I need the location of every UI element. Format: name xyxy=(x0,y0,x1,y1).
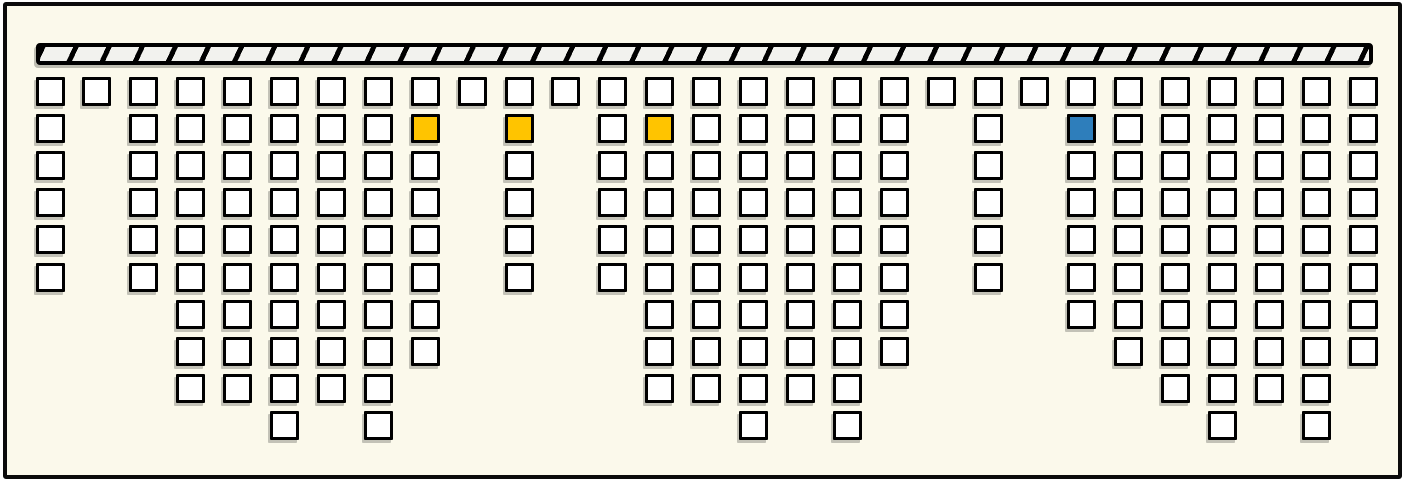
grid-cell[interactable] xyxy=(1161,263,1190,292)
grid-cell[interactable] xyxy=(1114,225,1143,254)
grid-cell[interactable] xyxy=(880,114,909,143)
grid-cell[interactable] xyxy=(1208,151,1237,180)
grid-cell[interactable] xyxy=(598,263,627,292)
grid-cell[interactable] xyxy=(974,151,1003,180)
grid-cell[interactable] xyxy=(129,263,158,292)
grid-cell[interactable] xyxy=(317,263,346,292)
grid-cell[interactable] xyxy=(833,411,862,440)
grid-cell[interactable] xyxy=(270,188,299,217)
grid-cell[interactable] xyxy=(739,374,768,403)
grid-cell[interactable] xyxy=(974,225,1003,254)
grid-cell[interactable] xyxy=(692,77,721,106)
grid-cell[interactable] xyxy=(411,225,440,254)
grid-cell[interactable] xyxy=(270,374,299,403)
grid-cell[interactable] xyxy=(1020,77,1049,106)
grid-cell[interactable] xyxy=(505,77,534,106)
grid-cell[interactable] xyxy=(1161,77,1190,106)
grid-cell[interactable] xyxy=(739,151,768,180)
grid-cell[interactable] xyxy=(880,151,909,180)
grid-cell[interactable] xyxy=(1255,263,1284,292)
grid-cell[interactable] xyxy=(36,151,65,180)
grid-cell-highlighted-yellow[interactable] xyxy=(411,114,440,143)
grid-cell[interactable] xyxy=(1208,337,1237,366)
grid-cell[interactable] xyxy=(598,188,627,217)
grid-cell[interactable] xyxy=(1255,151,1284,180)
grid-cell[interactable] xyxy=(598,151,627,180)
grid-cell[interactable] xyxy=(270,300,299,329)
grid-cell[interactable] xyxy=(505,151,534,180)
grid-cell[interactable] xyxy=(1208,188,1237,217)
grid-cell[interactable] xyxy=(833,151,862,180)
grid-cell[interactable] xyxy=(129,114,158,143)
grid-cell[interactable] xyxy=(1255,188,1284,217)
grid-cell[interactable] xyxy=(364,188,393,217)
grid-cell[interactable] xyxy=(833,337,862,366)
grid-cell[interactable] xyxy=(223,300,252,329)
grid-cell[interactable] xyxy=(1161,337,1190,366)
grid-cell[interactable] xyxy=(645,337,674,366)
grid-cell[interactable] xyxy=(645,77,674,106)
grid-cell[interactable] xyxy=(36,188,65,217)
grid-cell[interactable] xyxy=(1302,411,1331,440)
grid-cell[interactable] xyxy=(364,411,393,440)
grid-cell[interactable] xyxy=(36,225,65,254)
grid-cell[interactable] xyxy=(176,77,205,106)
grid-cell[interactable] xyxy=(411,263,440,292)
grid-cell[interactable] xyxy=(739,300,768,329)
grid-cell[interactable] xyxy=(129,77,158,106)
grid-cell[interactable] xyxy=(458,77,487,106)
grid-cell[interactable] xyxy=(36,77,65,106)
grid-cell[interactable] xyxy=(1208,114,1237,143)
grid-cell[interactable] xyxy=(692,188,721,217)
grid-cell[interactable] xyxy=(645,151,674,180)
grid-cell[interactable] xyxy=(786,114,815,143)
grid-cell[interactable] xyxy=(411,337,440,366)
grid-cell[interactable] xyxy=(505,188,534,217)
grid-cell-highlighted-yellow[interactable] xyxy=(505,114,534,143)
grid-cell[interactable] xyxy=(833,225,862,254)
grid-cell[interactable] xyxy=(1208,225,1237,254)
grid-cell[interactable] xyxy=(1161,374,1190,403)
grid-cell[interactable] xyxy=(364,337,393,366)
grid-cell[interactable] xyxy=(1067,77,1096,106)
grid-cell[interactable] xyxy=(1302,77,1331,106)
grid-cell[interactable] xyxy=(1114,151,1143,180)
grid-cell[interactable] xyxy=(692,300,721,329)
grid-cell[interactable] xyxy=(739,188,768,217)
grid-cell[interactable] xyxy=(1114,114,1143,143)
grid-cell[interactable] xyxy=(364,114,393,143)
grid-cell[interactable] xyxy=(833,263,862,292)
grid-cell[interactable] xyxy=(223,151,252,180)
grid-cell[interactable] xyxy=(176,300,205,329)
grid-cell[interactable] xyxy=(1114,77,1143,106)
grid-cell[interactable] xyxy=(176,114,205,143)
grid-cell[interactable] xyxy=(270,337,299,366)
grid-cell[interactable] xyxy=(223,188,252,217)
grid-cell[interactable] xyxy=(739,263,768,292)
grid-cell[interactable] xyxy=(364,225,393,254)
grid-cell[interactable] xyxy=(1349,151,1378,180)
grid-cell[interactable] xyxy=(364,151,393,180)
grid-cell[interactable] xyxy=(223,77,252,106)
grid-cell[interactable] xyxy=(317,77,346,106)
grid-cell[interactable] xyxy=(786,151,815,180)
grid-cell[interactable] xyxy=(692,374,721,403)
grid-cell[interactable] xyxy=(786,263,815,292)
grid-cell[interactable] xyxy=(1067,225,1096,254)
grid-cell[interactable] xyxy=(1302,114,1331,143)
grid-cell[interactable] xyxy=(1302,337,1331,366)
grid-cell[interactable] xyxy=(598,77,627,106)
grid-cell[interactable] xyxy=(1161,225,1190,254)
grid-cell[interactable] xyxy=(645,374,674,403)
grid-cell[interactable] xyxy=(176,263,205,292)
grid-cell[interactable] xyxy=(411,188,440,217)
grid-cell[interactable] xyxy=(974,263,1003,292)
grid-cell[interactable] xyxy=(739,77,768,106)
grid-cell[interactable] xyxy=(1161,188,1190,217)
grid-cell[interactable] xyxy=(974,188,1003,217)
grid-cell[interactable] xyxy=(1255,225,1284,254)
grid-cell[interactable] xyxy=(833,188,862,217)
grid-cell[interactable] xyxy=(880,300,909,329)
grid-cell[interactable] xyxy=(833,374,862,403)
grid-cell[interactable] xyxy=(270,225,299,254)
grid-cell[interactable] xyxy=(1067,263,1096,292)
grid-cell-highlighted-yellow[interactable] xyxy=(645,114,674,143)
grid-cell[interactable] xyxy=(317,188,346,217)
grid-cell[interactable] xyxy=(974,77,1003,106)
grid-cell[interactable] xyxy=(1067,151,1096,180)
grid-cell[interactable] xyxy=(880,263,909,292)
grid-cell[interactable] xyxy=(880,188,909,217)
grid-cell[interactable] xyxy=(36,263,65,292)
grid-cell[interactable] xyxy=(1161,151,1190,180)
grid-cell[interactable] xyxy=(786,300,815,329)
grid-cell[interactable] xyxy=(364,300,393,329)
grid-cell[interactable] xyxy=(1302,151,1331,180)
grid-cell[interactable] xyxy=(129,151,158,180)
grid-cell[interactable] xyxy=(317,151,346,180)
grid-cell[interactable] xyxy=(1114,188,1143,217)
grid-cell[interactable] xyxy=(36,114,65,143)
grid-cell[interactable] xyxy=(974,114,1003,143)
grid-cell[interactable] xyxy=(317,374,346,403)
grid-cell[interactable] xyxy=(1349,188,1378,217)
grid-cell[interactable] xyxy=(1161,114,1190,143)
grid-cell[interactable] xyxy=(176,151,205,180)
grid-cell[interactable] xyxy=(1114,337,1143,366)
grid-cell[interactable] xyxy=(786,188,815,217)
grid-cell[interactable] xyxy=(645,188,674,217)
grid-cell[interactable] xyxy=(1302,300,1331,329)
grid-cell[interactable] xyxy=(1255,374,1284,403)
grid-cell[interactable] xyxy=(1302,225,1331,254)
grid-cell[interactable] xyxy=(1302,374,1331,403)
grid-cell[interactable] xyxy=(223,263,252,292)
grid-cell[interactable] xyxy=(364,374,393,403)
grid-cell[interactable] xyxy=(505,225,534,254)
grid-cell[interactable] xyxy=(786,77,815,106)
grid-cell[interactable] xyxy=(692,263,721,292)
grid-cell[interactable] xyxy=(786,374,815,403)
grid-cell[interactable] xyxy=(1302,263,1331,292)
grid-cell[interactable] xyxy=(317,225,346,254)
grid-cell[interactable] xyxy=(176,374,205,403)
grid-cell[interactable] xyxy=(129,225,158,254)
grid-cell[interactable] xyxy=(598,225,627,254)
grid-cell[interactable] xyxy=(645,300,674,329)
grid-cell[interactable] xyxy=(1208,411,1237,440)
grid-cell[interactable] xyxy=(739,225,768,254)
grid-cell[interactable] xyxy=(1208,77,1237,106)
grid-cell[interactable] xyxy=(1208,300,1237,329)
grid-cell[interactable] xyxy=(645,225,674,254)
grid-cell[interactable] xyxy=(880,337,909,366)
grid-cell[interactable] xyxy=(364,77,393,106)
grid-cell[interactable] xyxy=(176,225,205,254)
grid-cell[interactable] xyxy=(223,114,252,143)
grid-cell[interactable] xyxy=(317,300,346,329)
grid-cell[interactable] xyxy=(786,337,815,366)
grid-cell[interactable] xyxy=(1349,114,1378,143)
grid-cell[interactable] xyxy=(880,77,909,106)
grid-cell[interactable] xyxy=(1208,263,1237,292)
grid-cell[interactable] xyxy=(1255,77,1284,106)
grid-cell[interactable] xyxy=(223,374,252,403)
grid-cell[interactable] xyxy=(880,225,909,254)
grid-cell[interactable] xyxy=(270,114,299,143)
grid-cell[interactable] xyxy=(270,411,299,440)
grid-cell[interactable] xyxy=(1067,300,1096,329)
grid-cell[interactable] xyxy=(692,114,721,143)
grid-cell[interactable] xyxy=(551,77,580,106)
grid-cell[interactable] xyxy=(317,337,346,366)
grid-cell[interactable] xyxy=(82,77,111,106)
grid-cell[interactable] xyxy=(692,225,721,254)
grid-cell[interactable] xyxy=(270,263,299,292)
grid-cell[interactable] xyxy=(270,151,299,180)
grid-cell[interactable] xyxy=(1255,300,1284,329)
grid-cell[interactable] xyxy=(739,337,768,366)
grid-cell[interactable] xyxy=(786,225,815,254)
grid-cell[interactable] xyxy=(270,77,299,106)
grid-cell[interactable] xyxy=(364,263,393,292)
grid-cell[interactable] xyxy=(1302,188,1331,217)
grid-cell[interactable] xyxy=(1161,300,1190,329)
grid-cell[interactable] xyxy=(833,114,862,143)
grid-cell[interactable] xyxy=(223,225,252,254)
grid-cell[interactable] xyxy=(176,188,205,217)
grid-cell[interactable] xyxy=(411,300,440,329)
grid-cell[interactable] xyxy=(317,114,346,143)
grid-cell[interactable] xyxy=(1114,263,1143,292)
grid-cell[interactable] xyxy=(1349,337,1378,366)
grid-cell[interactable] xyxy=(1349,225,1378,254)
grid-cell[interactable] xyxy=(692,337,721,366)
grid-cell[interactable] xyxy=(1349,77,1378,106)
grid-cell[interactable] xyxy=(1349,263,1378,292)
grid-cell[interactable] xyxy=(739,114,768,143)
grid-cell[interactable] xyxy=(1114,300,1143,329)
grid-cell[interactable] xyxy=(1255,114,1284,143)
grid-cell[interactable] xyxy=(598,114,627,143)
grid-cell[interactable] xyxy=(411,77,440,106)
grid-cell[interactable] xyxy=(833,300,862,329)
grid-cell[interactable] xyxy=(645,263,674,292)
grid-cell[interactable] xyxy=(833,77,862,106)
grid-cell[interactable] xyxy=(223,337,252,366)
grid-cell[interactable] xyxy=(129,188,158,217)
grid-cell[interactable] xyxy=(927,77,956,106)
grid-cell[interactable] xyxy=(411,151,440,180)
diagram-stage xyxy=(0,0,1408,483)
grid-cell[interactable] xyxy=(1255,337,1284,366)
grid-cell-highlighted-blue[interactable] xyxy=(1067,114,1096,143)
grid-cell[interactable] xyxy=(692,151,721,180)
grid-cell[interactable] xyxy=(1349,300,1378,329)
grid-cell[interactable] xyxy=(1208,374,1237,403)
grid-cell[interactable] xyxy=(739,411,768,440)
grid-cell[interactable] xyxy=(176,337,205,366)
grid-cell[interactable] xyxy=(1067,188,1096,217)
ceiling-hatched-bar xyxy=(36,43,1373,65)
grid-cell[interactable] xyxy=(505,263,534,292)
